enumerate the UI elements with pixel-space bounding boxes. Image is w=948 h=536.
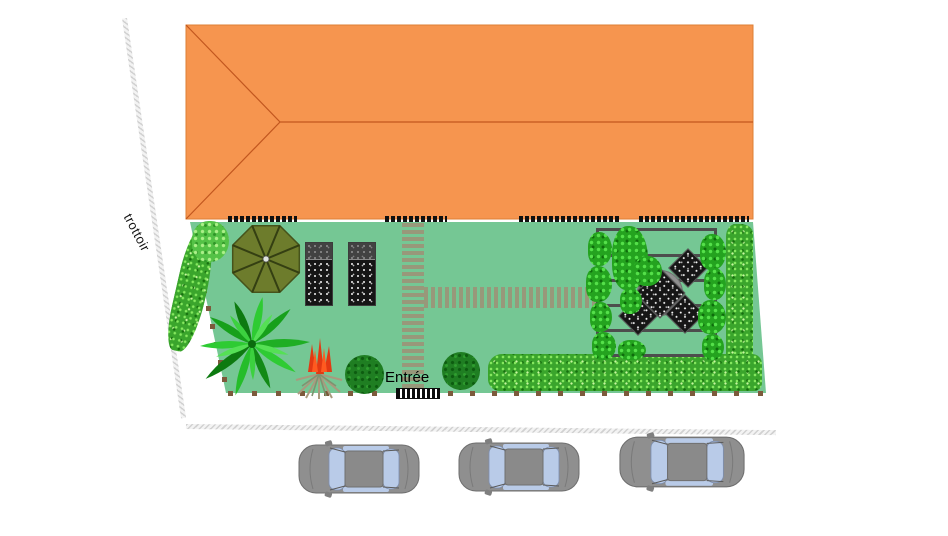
lounger-pillow — [306, 243, 332, 260]
fence-post — [470, 391, 475, 396]
lounger-pillow — [349, 243, 375, 260]
climbing-plant — [592, 332, 616, 360]
climbing-plant — [620, 288, 642, 314]
fence-post — [580, 391, 585, 396]
entrance-label: Entrée — [385, 369, 429, 386]
round-bush — [345, 355, 384, 394]
parked-car — [297, 440, 421, 498]
red-flower-plant — [294, 336, 344, 400]
fence-post — [758, 391, 763, 396]
parked-car — [457, 438, 581, 496]
climbing-plant — [588, 232, 612, 266]
climbing-plant — [634, 256, 662, 286]
entrance-gate — [396, 388, 440, 399]
fence-post — [690, 391, 695, 396]
fence-post — [558, 391, 563, 396]
parked-car — [616, 432, 748, 492]
climbing-plant — [704, 268, 726, 300]
pergola-beam — [596, 354, 717, 357]
fence-post — [492, 391, 497, 396]
climbing-plant — [618, 340, 646, 360]
facade-opening-strip — [385, 216, 447, 222]
climbing-plant — [586, 266, 612, 302]
path-horizontal — [424, 287, 597, 308]
climbing-plant — [590, 302, 612, 332]
climbing-plant — [700, 234, 726, 270]
fence-post — [712, 391, 717, 396]
fence-post — [646, 391, 651, 396]
facade-opening-strip — [639, 216, 749, 222]
fence-post — [734, 391, 739, 396]
climbing-plant — [702, 334, 724, 360]
parasol — [226, 222, 306, 298]
climbing-plant — [698, 300, 726, 334]
pergola-beam — [596, 228, 717, 231]
round-bush — [442, 352, 480, 390]
sun-lounger — [348, 242, 376, 306]
garden-plan-canvas: trottoir — [0, 0, 948, 536]
fence-post — [536, 391, 541, 396]
fence-post — [602, 391, 607, 396]
house-roof — [186, 25, 753, 219]
facade-opening-strip — [519, 216, 619, 222]
pergola-beam — [596, 329, 717, 332]
fence-post — [668, 391, 673, 396]
fence-post — [448, 391, 453, 396]
fence-post — [348, 391, 353, 396]
path-vertical — [402, 223, 424, 389]
fence-post — [514, 391, 519, 396]
fence-post — [624, 391, 629, 396]
